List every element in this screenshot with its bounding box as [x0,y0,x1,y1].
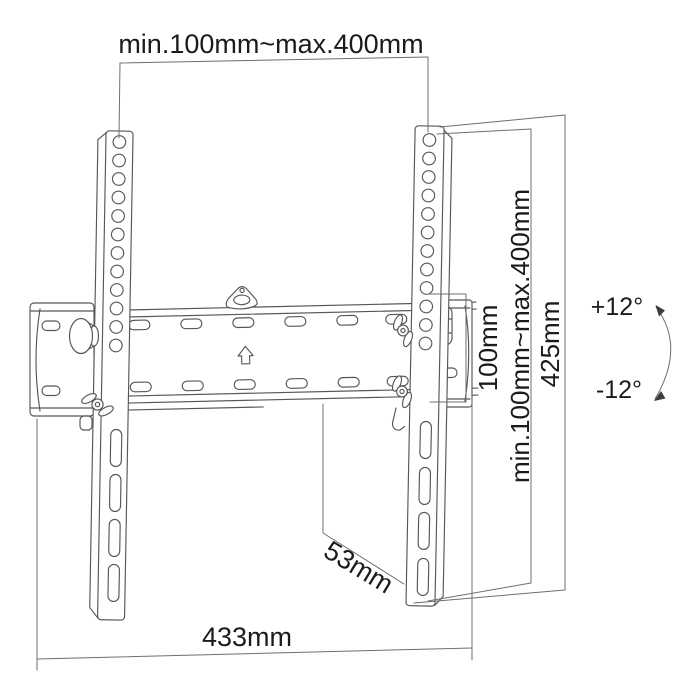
dim-total-width-label: 433mm [202,622,292,652]
dim-column-height-label: 425mm [535,301,565,388]
dim-depth-label: 53mm [319,535,399,599]
dim-top-width-label: min.100mm~max.400mm [118,29,423,59]
diagram-canvas: min.100mm~max.400mm 100mm min.100mm~max.… [0,0,700,700]
tilt-up-label: +12° [591,293,643,321]
dim-vesa-height-label: 100mm [473,305,503,392]
tv-mount-diagram: min.100mm~max.400mm 100mm min.100mm~max.… [0,0,700,700]
left-vesa-arm [90,131,134,621]
right-vesa-arm [406,126,452,607]
hook-icon [226,286,257,309]
dim-top-width: min.100mm~max.400mm [118,29,428,138]
dim-tilt-angles: +12° -12° [591,293,671,404]
dim-vesa-width-range-label: min.100mm~max.400mm [505,189,535,483]
dim-depth: 53mm [319,404,404,599]
tilt-arc-arrow-icon [655,307,671,399]
tilt-down-label: -12° [596,376,642,404]
